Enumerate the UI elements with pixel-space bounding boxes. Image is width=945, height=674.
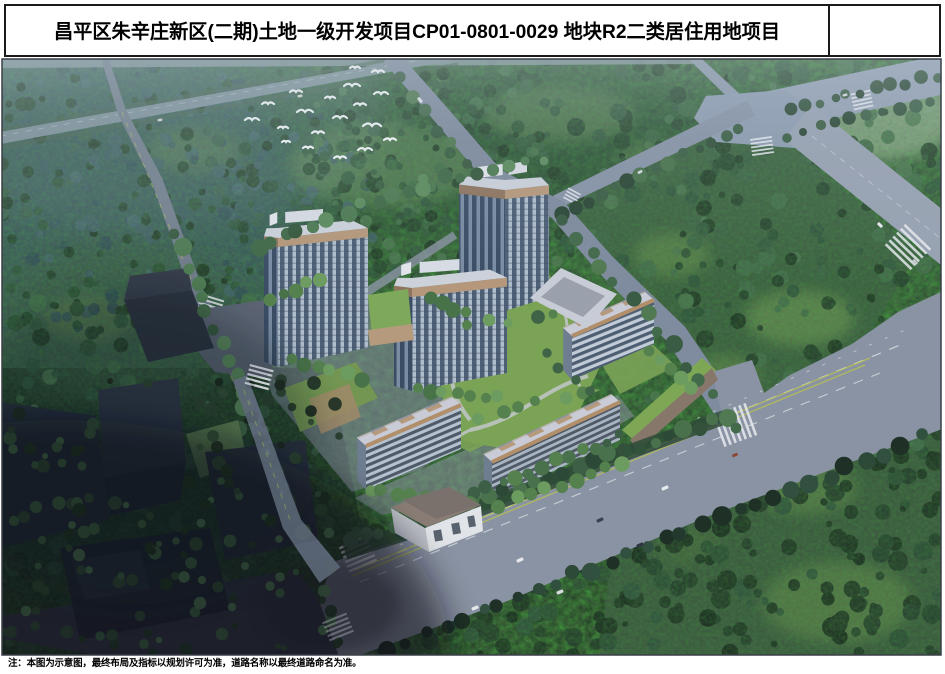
svg-text:昌平区朱辛庄新区(二期)土地一级开发项目CP01-0801-: 昌平区朱辛庄新区(二期)土地一级开发项目CP01-0801-0029 地块R2二… bbox=[54, 20, 780, 43]
svg-text:注：本图为示意图，最终布局及指标以规划许可为准，道路名称以最: 注：本图为示意图，最终布局及指标以规划许可为准，道路名称以最终道路命名为准。 bbox=[8, 657, 361, 669]
